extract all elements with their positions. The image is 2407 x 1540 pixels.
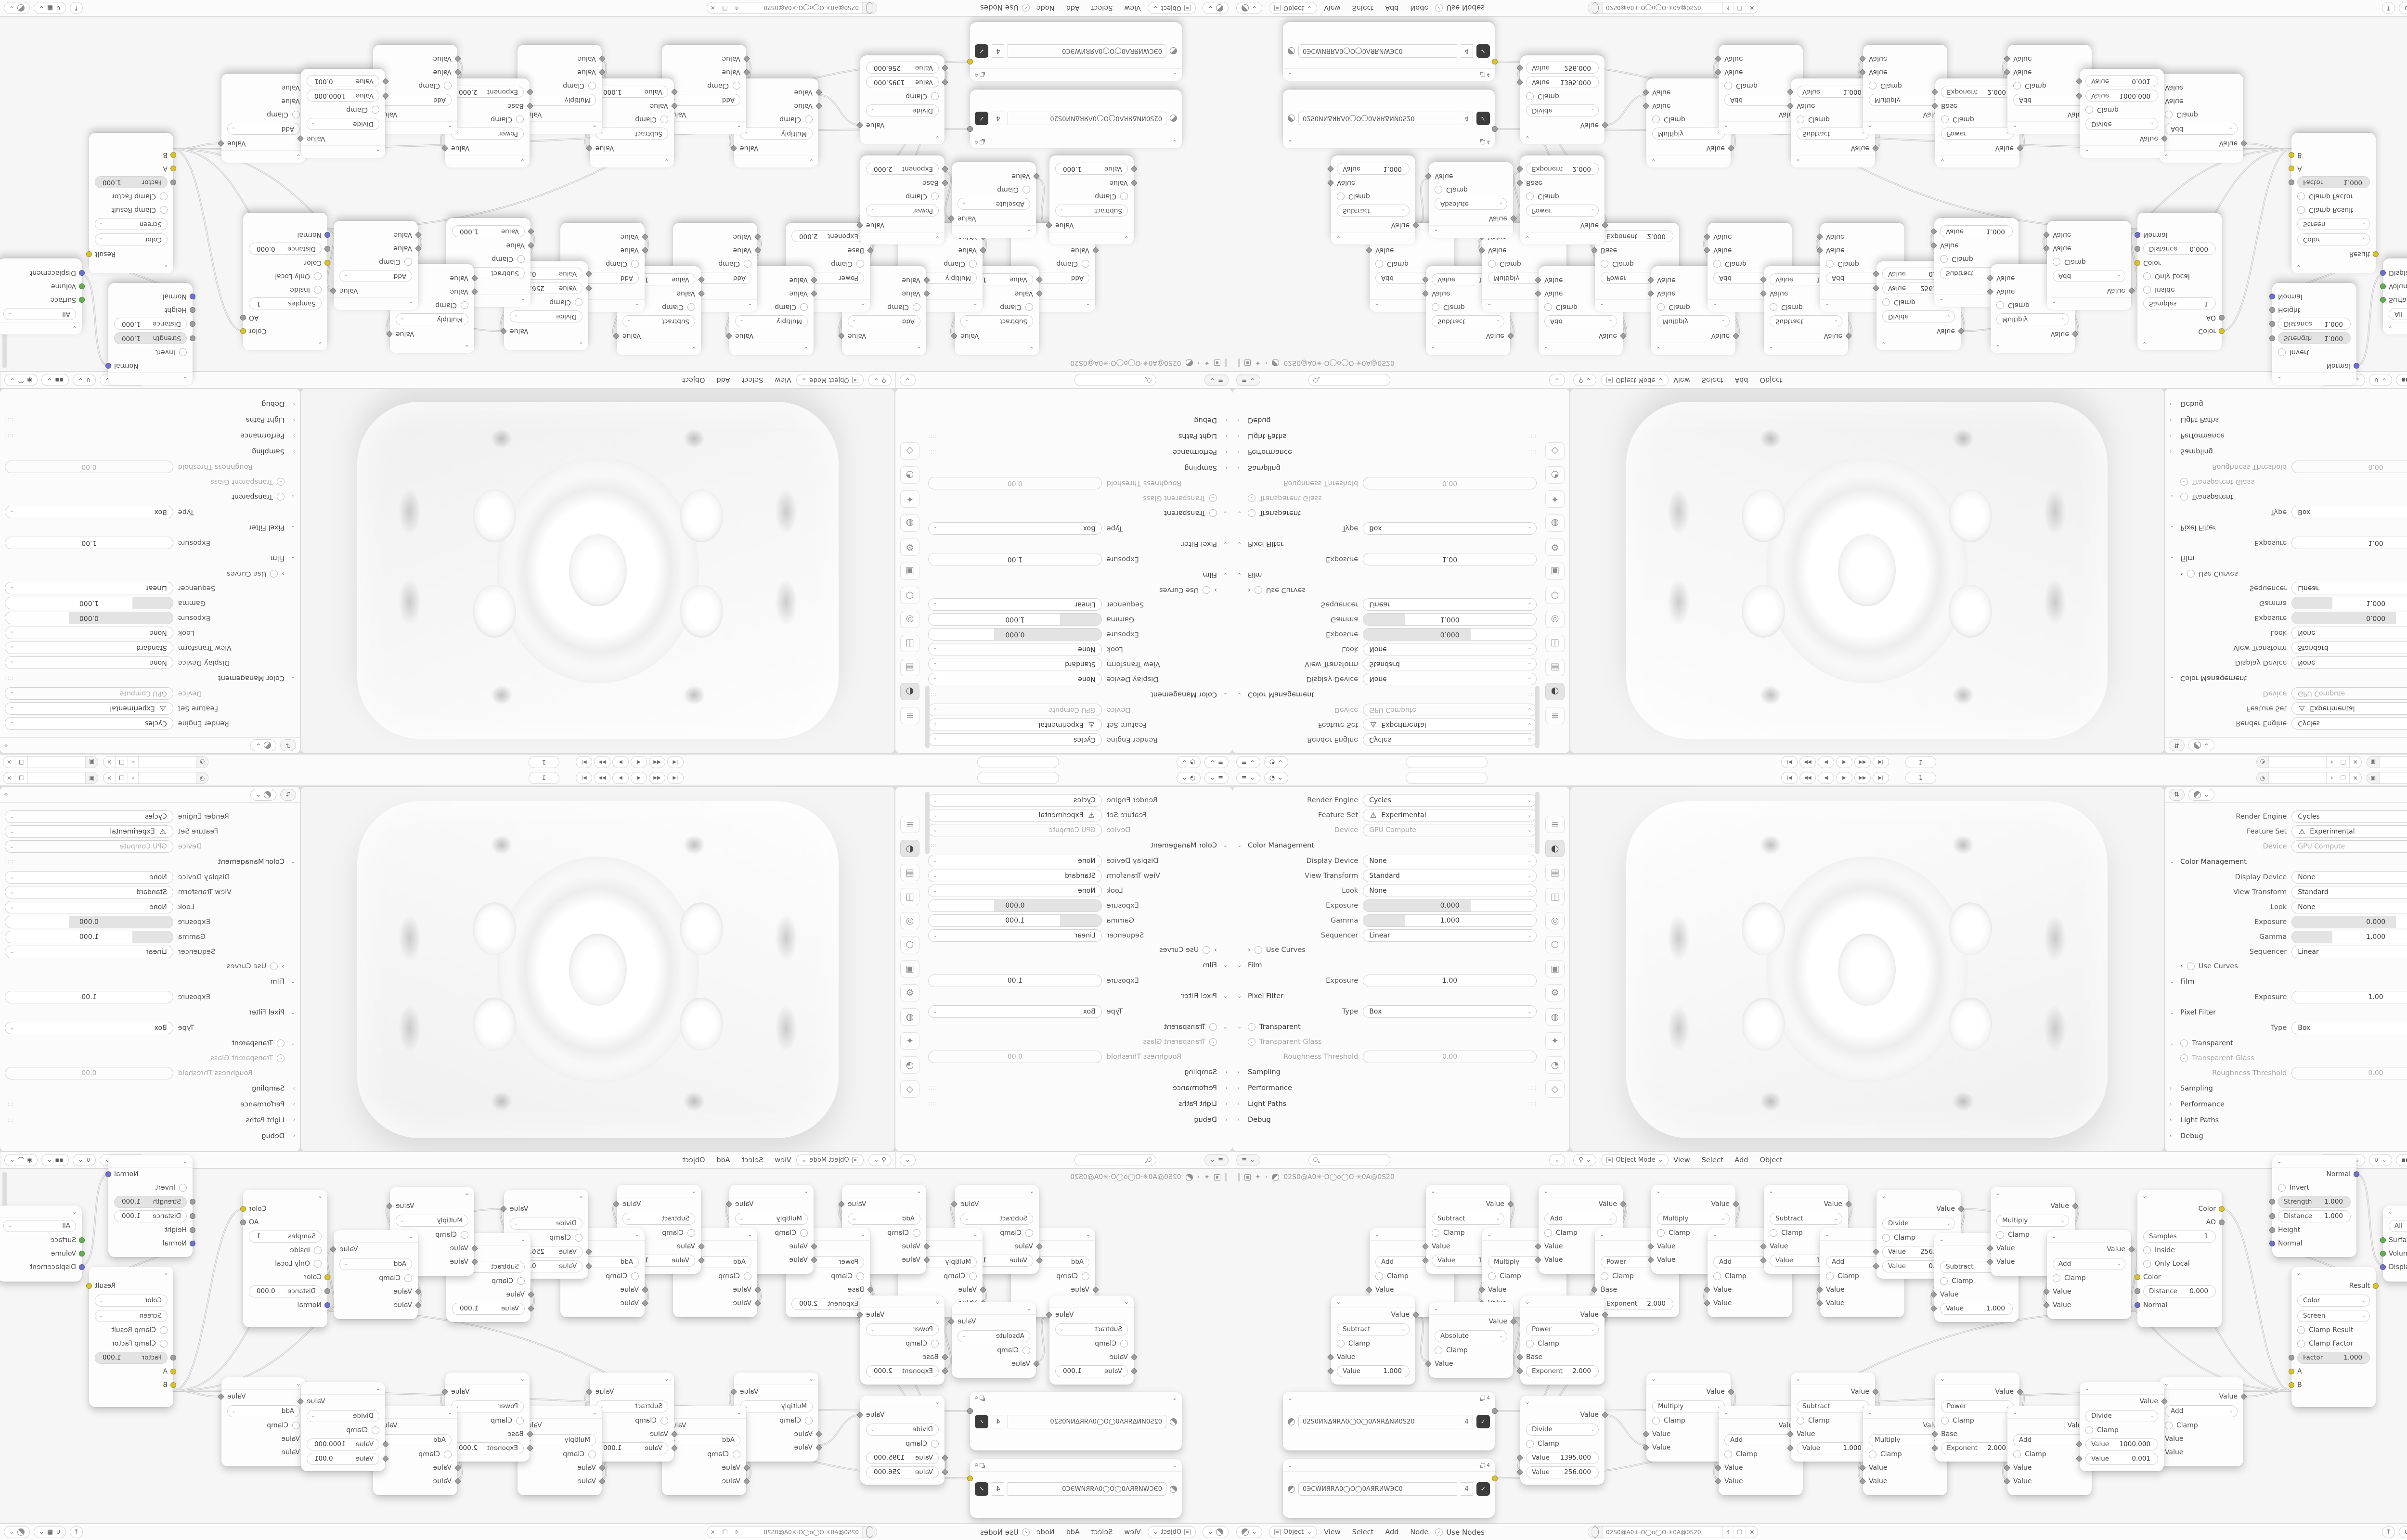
- node-socket[interactable]: [967, 1408, 973, 1414]
- node-checkbox[interactable]: Clamp: [1797, 1417, 1830, 1424]
- shader-node[interactable]: ⌄ValueAdd⌄ClampValueValue: [221, 1377, 306, 1466]
- panel-collapsed-header[interactable]: ›Debug: [1237, 412, 1537, 428]
- user-count[interactable]: 4: [731, 2, 742, 13]
- properties-tab[interactable]: ◫: [900, 888, 919, 905]
- material-name-field[interactable]: 02S0@A0✳·O◯o◯O·✳0A@0S20: [742, 2, 863, 13]
- node-checkbox[interactable]: Inside: [290, 1246, 322, 1254]
- editor-type-button[interactable]: ≡⌄: [1236, 772, 1260, 784]
- node-dropdown[interactable]: Divide⌄: [2085, 118, 2158, 130]
- sequencer-field[interactable]: Linear⌄: [5, 582, 173, 595]
- node-checkbox[interactable]: Clamp: [435, 1231, 468, 1239]
- panel-section-header[interactable]: ⌄Transparent: [5, 1035, 295, 1051]
- menu-item[interactable]: Add: [1066, 1528, 1080, 1536]
- panel-section-header[interactable]: ⌄Transparent: [1237, 1019, 1537, 1035]
- node-socket[interactable]: [324, 1302, 330, 1308]
- node-socket[interactable]: [2135, 1288, 2140, 1294]
- node-socket[interactable]: [190, 1199, 195, 1205]
- node-dropdown[interactable]: Power⌄: [866, 1323, 939, 1335]
- panel-collapsed-header[interactable]: ›Sampling: [1237, 1064, 1537, 1080]
- panel-section-header[interactable]: ⌄Film: [5, 974, 295, 989]
- playback-button[interactable]: ▶|: [1873, 756, 1889, 768]
- node-number-field[interactable]: Value1.000: [1055, 1365, 1128, 1377]
- properties-tab[interactable]: ✦: [1545, 1032, 1565, 1050]
- view-transform-field[interactable]: Standard⌄: [5, 642, 173, 654]
- node-dropdown[interactable]: Absolute⌄: [958, 198, 1030, 210]
- node-socket[interactable]: [2380, 1251, 2386, 1257]
- overlays-button[interactable]: ◉⌒⌄: [4, 374, 38, 386]
- node-dropdown[interactable]: Subtract⌄: [1055, 1323, 1128, 1335]
- node-socket[interactable]: [240, 1219, 246, 1225]
- node-number-field[interactable]: Value1.000: [452, 1303, 525, 1315]
- feature-set-field[interactable]: ⚠Experimental⌄: [5, 825, 173, 838]
- exposure-field[interactable]: 1.00: [1363, 975, 1537, 987]
- shader-node[interactable]: ⌄ValuePower⌄ClampBaseExponent2.000: [445, 1373, 530, 1462]
- close-icon[interactable]: ✕: [707, 1527, 719, 1538]
- node-checkbox[interactable]: Clamp Result: [112, 1326, 168, 1334]
- node-socket[interactable]: [1492, 59, 1498, 64]
- shader-node[interactable]: ⌄ValuePower⌄ClampBaseExponent2.000: [1935, 1373, 2019, 1462]
- node-dropdown[interactable]: Add⌄: [1544, 316, 1617, 328]
- menu-item[interactable]: View: [1673, 1156, 1690, 1164]
- exposure-field[interactable]: 0.000: [5, 916, 173, 928]
- panel-section-header[interactable]: ⌄Color Management∷∷: [5, 670, 295, 686]
- menu-item[interactable]: View: [1324, 1528, 1340, 1536]
- shader-node[interactable]: ⌄NormalInvertStrength1.000Distance1.000H…: [108, 283, 193, 385]
- playback-options-button[interactable]: ◔⌄: [1264, 756, 1288, 768]
- panel-collapsed-header[interactable]: ›Debug: [5, 1128, 295, 1144]
- exposure-field[interactable]: 0.000: [2291, 612, 2407, 625]
- filter-button[interactable]: ⇅: [2169, 740, 2185, 752]
- node-number-field[interactable]: Strength1.000: [114, 1196, 187, 1208]
- node-socket[interactable]: [2269, 307, 2275, 313]
- exposure-field[interactable]: 1.00: [5, 991, 173, 1003]
- node-dropdown[interactable]: Add⌄: [2053, 270, 2125, 282]
- node-dropdown[interactable]: Divide⌄: [510, 311, 582, 323]
- display-device-field[interactable]: None⌄: [2291, 657, 2407, 669]
- context-button[interactable]: ⌄: [2188, 789, 2214, 801]
- node-checkbox[interactable]: Clamp: [1882, 298, 1915, 306]
- node-socket[interactable]: [190, 321, 195, 327]
- magnet-button[interactable]: ▪▪⌄: [2396, 374, 2407, 386]
- shader-node[interactable]: ⌄ValuePower⌄ClampBaseExponent2.000: [860, 1296, 945, 1385]
- playback-options-button[interactable]: ◔⌄: [1177, 756, 1201, 768]
- checkbox-row[interactable]: ⌄Transparent Glass: [928, 1035, 1228, 1049]
- shader-node[interactable]: ⌄ValuePower⌄ClampBaseExponent2.000: [445, 78, 530, 167]
- viewlayer-datablock-selector[interactable]: ▣ ❐ ✕: [3, 772, 98, 784]
- shader-node[interactable]: ⌄ValuePower⌄ClampBaseExponent2.000: [1520, 1296, 1605, 1385]
- node-checkbox[interactable]: Clamp: [906, 192, 939, 200]
- node-socket[interactable]: [79, 297, 85, 303]
- node-dropdown[interactable]: Add⌄: [2165, 123, 2238, 135]
- panel-collapsed-header[interactable]: ›Performance∷∷: [5, 428, 295, 444]
- node-number-field[interactable]: Exponent2.000: [1601, 1298, 1673, 1310]
- view-transform-field[interactable]: Standard⌄: [2291, 886, 2407, 898]
- look-field[interactable]: None⌄: [5, 627, 173, 640]
- shader-node[interactable]: ⌄ValueSubtract⌄ClampValueValue1.000: [590, 1373, 674, 1462]
- node-checkbox[interactable]: Clamp: [1941, 115, 1974, 123]
- node-number-field[interactable]: Exponent2.000: [1941, 1442, 2014, 1454]
- properties-tab[interactable]: ◔: [1545, 1056, 1565, 1074]
- node-checkbox[interactable]: Clamp: [2165, 111, 2198, 118]
- render-engine-field[interactable]: Cycles⌄: [5, 810, 173, 823]
- node-dropdown[interactable]: Multiply⌄: [1996, 1215, 2069, 1227]
- close-icon[interactable]: ✕: [1746, 1527, 1758, 1538]
- device-field[interactable]: GPU Compute⌄: [1363, 824, 1537, 836]
- collapse-button[interactable]: ⌄: [1549, 374, 1565, 386]
- shader-node[interactable]: ⌄40ЭCWИЯRΛ0◯O◯0ΛЯRИWЭC04✓: [970, 22, 1182, 81]
- panel-collapsed-header[interactable]: ›Light Paths∷∷: [1237, 1096, 1537, 1112]
- properties-tab[interactable]: ◐: [1545, 840, 1565, 857]
- properties-tab[interactable]: ▣: [1545, 960, 1565, 977]
- panel-section-header[interactable]: ⌄Pixel Filter: [1237, 536, 1537, 552]
- gamma-field[interactable]: 1.000: [928, 914, 1102, 927]
- node-number-field[interactable]: Samples1: [2143, 1231, 2216, 1243]
- copy-icon[interactable]: ❐: [2337, 772, 2349, 783]
- playback-button[interactable]: ◀◀: [649, 772, 665, 784]
- playback-button[interactable]: ▶▶: [594, 756, 610, 768]
- checkbox-row[interactable]: ›Use Curves: [5, 566, 295, 581]
- node-checkbox[interactable]: Clamp: [606, 1272, 639, 1280]
- menu-item[interactable]: Add: [717, 376, 730, 384]
- roughness-threshold-field[interactable]: 0.00: [2291, 461, 2407, 474]
- node-checkbox[interactable]: Clamp: [1095, 1340, 1128, 1347]
- properties-tab[interactable]: ▣: [900, 960, 919, 977]
- roughness-threshold-field[interactable]: 0.00: [5, 461, 173, 474]
- node-socket[interactable]: [2135, 1302, 2140, 1308]
- node-checkbox[interactable]: Inside: [2143, 1246, 2175, 1254]
- node-number-field[interactable]: Factor1.000: [2297, 1352, 2370, 1364]
- node-socket[interactable]: [190, 1241, 195, 1246]
- filter-button[interactable]: ⇅: [280, 789, 296, 801]
- node-dropdown[interactable]: Screen⌄: [95, 218, 168, 231]
- copy-icon[interactable]: ❐: [1734, 1527, 1746, 1538]
- properties-tab[interactable]: ◫: [1545, 635, 1565, 652]
- menu-item[interactable]: Add: [717, 1156, 730, 1164]
- node-number-field[interactable]: Value1.000: [1797, 86, 1869, 98]
- panel-collapsed-header[interactable]: ›Sampling: [5, 444, 295, 460]
- roughness-threshold-field[interactable]: 0.00: [2291, 1067, 2407, 1079]
- properties-tab[interactable]: ◍: [900, 1008, 919, 1026]
- node-checkbox[interactable]: Clamp: [418, 1450, 452, 1458]
- display-device-field[interactable]: None⌄: [5, 657, 173, 669]
- exposure-field[interactable]: 1.00: [2291, 537, 2407, 550]
- node-checkbox[interactable]: Clamp: [662, 303, 695, 311]
- shader-node[interactable]: ⌄ValueDivide⌄ClampValue1395.000Value256.…: [1520, 1396, 1605, 1485]
- magnet-button[interactable]: ▪▪⌄: [2396, 1154, 2407, 1166]
- shader-node[interactable]: ⌄ValueDivide⌄ClampValue1395.000Value256.…: [860, 1396, 945, 1485]
- shader-node[interactable]: ⌄402S0ИNΔЯRΛ0◯O◯0ΛЯRΔNИ0S204✓: [1283, 1392, 1495, 1450]
- shader-node[interactable]: ⌄ValuePower⌄ClampBaseExponent2.000: [1520, 155, 1605, 244]
- grip-handle[interactable]: [1225, 1173, 1227, 1181]
- node-number-field[interactable]: Strength1.000: [2278, 1196, 2351, 1208]
- checkbox-row[interactable]: ›Use Curves: [928, 583, 1228, 597]
- pin-icon[interactable]: ⌖: [4, 741, 8, 750]
- view-transform-field[interactable]: Standard⌄: [928, 658, 1102, 671]
- panel-section-header[interactable]: ⌄Transparent: [2170, 1035, 2407, 1051]
- node-checkbox[interactable]: Clamp: [1375, 1272, 1409, 1280]
- menu-item[interactable]: View: [775, 1156, 791, 1164]
- type-field[interactable]: Box⌄: [928, 1005, 1102, 1018]
- exposure-field[interactable]: 1.00: [928, 553, 1102, 566]
- node-checkbox[interactable]: Clamp: [1941, 1417, 1974, 1424]
- playback-button[interactable]: ▶▶: [1854, 772, 1871, 784]
- user-count[interactable]: 4: [1722, 1527, 1734, 1538]
- node-number-field[interactable]: Exponent2.000: [1601, 231, 1673, 243]
- node-number-field[interactable]: Value1.000: [1055, 163, 1128, 175]
- properties-tab[interactable]: ⚙: [1545, 539, 1565, 556]
- node-checkbox[interactable]: Clamp: [1657, 1229, 1690, 1237]
- properties-tab[interactable]: ◇: [900, 1080, 919, 1098]
- node-number-field[interactable]: Exponent2.000: [1526, 1365, 1599, 1377]
- menu-item[interactable]: Select: [1352, 1528, 1374, 1536]
- node-dropdown[interactable]: Subtract⌄: [1337, 1323, 1410, 1335]
- panel-section-header[interactable]: ⌄Film: [2170, 551, 2407, 566]
- node-dropdown[interactable]: Subtract⌄: [1770, 1213, 1842, 1225]
- node-checkbox[interactable]: Clamp Factor: [2297, 192, 2353, 200]
- node-dropdown[interactable]: Power⌄: [1526, 205, 1599, 217]
- node-checkbox[interactable]: Clamp Result: [2297, 1326, 2353, 1334]
- node-number-field[interactable]: Exponent2.000: [1526, 163, 1599, 175]
- node-dropdown[interactable]: Multiply⌄: [523, 1434, 596, 1446]
- node-checkbox[interactable]: Clamp: [1601, 260, 1634, 268]
- playback-button[interactable]: ◀: [631, 756, 647, 768]
- render-engine-field[interactable]: Cycles⌄: [5, 718, 173, 730]
- node-number-field[interactable]: Value0.001: [2085, 1453, 2158, 1465]
- properties-search-input[interactable]: [1074, 1154, 1156, 1166]
- node-dropdown[interactable]: Subtract⌄: [960, 1213, 1033, 1225]
- node-number-field[interactable]: Value0.001: [307, 1453, 379, 1465]
- node-checkbox[interactable]: Clamp: [1940, 1277, 1973, 1285]
- viewport-menus[interactable]: ViewSelectAddObject: [682, 1156, 791, 1164]
- panel-collapsed-header[interactable]: ›Light Paths∷∷: [928, 428, 1228, 444]
- menu-item[interactable]: Add: [1734, 376, 1748, 384]
- node-socket[interactable]: [1492, 126, 1498, 132]
- magnet-button[interactable]: ▪▪⌄: [41, 374, 69, 386]
- node-number-field[interactable]: Exponent2.000: [866, 1365, 939, 1377]
- shader-node[interactable]: ⌄ValuePower⌄ClampBaseExponent2.000: [860, 155, 945, 244]
- playback-button[interactable]: ▶|: [576, 772, 592, 784]
- panel-section-header[interactable]: ⌄Film: [928, 957, 1228, 973]
- mode-dropdown[interactable]: Object Mode⌄: [1601, 1154, 1669, 1166]
- node-checkbox[interactable]: Clamp: [418, 82, 452, 90]
- node-number-field[interactable]: Distance1.000: [2278, 1210, 2351, 1222]
- viewlayer-name-field[interactable]: [28, 757, 86, 768]
- material-datablock-selector[interactable]: 02S0@A0✳·O◯o◯O·✳0A@0S20 4 ❐ ✕: [707, 2, 877, 14]
- close-icon[interactable]: ✕: [104, 772, 116, 783]
- node-checkbox[interactable]: Clamp: [1337, 1340, 1370, 1347]
- node-checkbox[interactable]: Clamp: [906, 1340, 939, 1347]
- node-dropdown[interactable]: Add⌄: [668, 94, 740, 106]
- node-dropdown[interactable]: Multiply⌄: [735, 316, 808, 328]
- properties-tab[interactable]: ✦: [900, 490, 919, 508]
- node-checkbox[interactable]: Clamp: [944, 260, 977, 268]
- panel-collapsed-header[interactable]: ›Light Paths∷∷: [5, 1112, 295, 1128]
- node-dropdown[interactable]: Color⌄: [2297, 1295, 2370, 1307]
- node-socket[interactable]: [2380, 283, 2386, 289]
- node-dropdown[interactable]: Divide⌄: [1526, 1424, 1599, 1436]
- panel-collapsed-header[interactable]: ›Debug: [1237, 1112, 1537, 1128]
- properties-tab[interactable]: ◇: [1545, 1080, 1565, 1098]
- properties-search-input[interactable]: [1074, 374, 1156, 386]
- node-number-field[interactable]: Value0.001: [2085, 76, 2158, 88]
- copy-icon[interactable]: ❐: [1734, 2, 1746, 13]
- exposure-field[interactable]: 1.00: [928, 975, 1102, 987]
- copy-icon[interactable]: ❐: [116, 757, 128, 768]
- node-checkbox[interactable]: Clamp: [1375, 260, 1409, 268]
- roughness-threshold-field[interactable]: 0.00: [5, 1067, 173, 1079]
- node-socket[interactable]: [2380, 1264, 2386, 1270]
- current-frame-field[interactable]: 1: [529, 772, 559, 784]
- filter-type-button[interactable]: ≡⌄: [1204, 1154, 1229, 1166]
- node-checkbox[interactable]: Clamp: [1526, 92, 1559, 100]
- node-checkbox[interactable]: Clamp: [1488, 260, 1521, 268]
- shader-node[interactable]: ⌄All⌄SurfaceVolumeDisplacement: [0, 1206, 82, 1282]
- shader-node[interactable]: ⌄ResultColor⌄Screen⌄Clamp ResultClamp Fa…: [2291, 1267, 2376, 1407]
- viewport-3d[interactable]: [1570, 389, 2164, 753]
- node-number-field[interactable]: Value1.000: [595, 86, 668, 98]
- properties-tab[interactable]: ≡: [1545, 816, 1565, 833]
- node-dropdown[interactable]: Multiply⌄: [1869, 94, 1941, 106]
- panel-collapsed-header[interactable]: ›Light Paths∷∷: [5, 412, 295, 428]
- node-socket[interactable]: [105, 1171, 111, 1177]
- node-menus[interactable]: ViewSelectAddNode: [1036, 4, 1141, 12]
- current-frame-field[interactable]: 1: [1905, 756, 1936, 768]
- node-checkbox[interactable]: Clamp: [831, 260, 864, 268]
- node-socket[interactable]: [967, 59, 973, 64]
- panel-section-header[interactable]: ⌄Pixel Filter: [928, 536, 1228, 552]
- viewlayer-name-field[interactable]: [28, 772, 86, 783]
- snap-button[interactable]: ∪⌄: [73, 1154, 96, 1166]
- node-checkbox[interactable]: Clamp: [1435, 186, 1468, 193]
- filter-type-button[interactable]: ≡⌄: [1236, 1154, 1260, 1166]
- node-socket[interactable]: [190, 1227, 195, 1233]
- node-number-field[interactable]: Distance0.000: [2143, 1285, 2216, 1297]
- node-socket[interactable]: [170, 1369, 176, 1374]
- pin-icon[interactable]: ⌖: [4, 790, 8, 799]
- node-checkbox[interactable]: Clamp: [1526, 192, 1559, 200]
- scene-name-field[interactable]: [2268, 757, 2326, 768]
- properties-search-input[interactable]: [1308, 1154, 1390, 1166]
- properties-tab[interactable]: ◐: [900, 840, 919, 857]
- material-datablock-selector[interactable]: 02S0@A0✳·O◯o◯O·✳0A@0S20 4 ❐ ✕: [1588, 2, 1758, 14]
- node-socket[interactable]: [2269, 1241, 2275, 1246]
- node-number-field[interactable]: Value1000.000: [307, 1438, 379, 1450]
- node-socket[interactable]: [240, 1206, 246, 1212]
- properties-tab[interactable]: ◐: [1545, 683, 1565, 700]
- viewlayer-name-field[interactable]: [2379, 757, 2407, 768]
- viewport-menus[interactable]: ViewSelectAddObject: [1673, 376, 1782, 384]
- node-checkbox[interactable]: Clamp: [2085, 1426, 2119, 1434]
- panel-section-header[interactable]: ⌄Color Management∷∷: [1237, 837, 1537, 853]
- properties-tab[interactable]: ◍: [900, 514, 919, 532]
- viewport-3d[interactable]: [301, 787, 894, 1151]
- copy-icon[interactable]: ❐: [15, 757, 28, 768]
- playback-options-button[interactable]: ◔⌄: [1264, 772, 1288, 784]
- panel-section-header[interactable]: ⌄Transparent: [928, 1019, 1228, 1035]
- magnet-grid-button[interactable]: ∪▦⌄: [34, 1526, 66, 1538]
- properties-search-input[interactable]: [1308, 374, 1390, 386]
- menu-item[interactable]: View: [1124, 1528, 1140, 1536]
- node-dropdown[interactable]: Multiply⌄: [740, 128, 813, 140]
- node-dropdown[interactable]: Screen⌄: [95, 1310, 168, 1322]
- node-checkbox[interactable]: Clamp: [1652, 1417, 1685, 1424]
- node-socket[interactable]: [2289, 1369, 2294, 1374]
- render-engine-field[interactable]: Cycles⌄: [1363, 794, 1537, 807]
- node-dropdown[interactable]: Divide⌄: [2085, 1410, 2158, 1422]
- shader-node[interactable]: ⌄ValueSubtract⌄ClampValueValue1.000: [1331, 155, 1415, 244]
- node-checkbox[interactable]: Clamp: [662, 1229, 695, 1237]
- properties-tab[interactable]: ◎: [1545, 912, 1565, 929]
- playback-button[interactable]: ▶: [1836, 756, 1852, 768]
- roughness-threshold-field[interactable]: 0.00: [1363, 477, 1537, 490]
- panel-section-header[interactable]: ⌄Pixel Filter: [2170, 1004, 2407, 1020]
- node-socket[interactable]: [2269, 1227, 2275, 1233]
- node-socket[interactable]: [240, 315, 246, 321]
- node-dropdown[interactable]: Add⌄: [379, 1434, 452, 1446]
- display-device-field[interactable]: None⌄: [928, 855, 1102, 867]
- device-field[interactable]: GPU Compute⌄: [2291, 688, 2407, 700]
- menu-item[interactable]: Select: [1352, 4, 1374, 12]
- node-checkbox[interactable]: Clamp Factor: [2297, 1340, 2353, 1347]
- panel-collapsed-header[interactable]: ›Performance∷∷: [1237, 1080, 1537, 1096]
- node-number-field[interactable]: Value1000.000: [307, 90, 379, 102]
- node-socket[interactable]: [2373, 251, 2379, 257]
- shader-node[interactable]: ⌄ValueAbsolute⌄ClampValue: [952, 1302, 1036, 1378]
- node-checkbox[interactable]: Clamp: [1826, 260, 1859, 268]
- menu-item[interactable]: Add: [1066, 4, 1080, 12]
- node-socket[interactable]: [190, 307, 195, 313]
- material-datablock-selector[interactable]: 02S0@A0✳·O◯o◯O·✳0A@0S20 4 ❐ ✕: [1588, 1526, 1758, 1538]
- shader-type-dropdown[interactable]: Object⌄: [1148, 2, 1196, 14]
- snap-button[interactable]: ∪⌄: [2369, 374, 2392, 386]
- node-dropdown[interactable]: Subtract⌄: [1055, 205, 1128, 217]
- node-menus[interactable]: ViewSelectAddNode: [1324, 4, 1428, 12]
- properties-tab[interactable]: ⬡: [1545, 936, 1565, 953]
- type-field[interactable]: Box⌄: [5, 1022, 173, 1034]
- checkbox-row[interactable]: ›Use Curves: [1237, 943, 1537, 957]
- node-socket[interactable]: [1492, 1476, 1498, 1481]
- checkbox-row[interactable]: ›Use Curves: [2170, 959, 2407, 974]
- viewport-menus[interactable]: ViewSelectAddObject: [682, 376, 791, 384]
- context-button[interactable]: ⌄: [2188, 740, 2214, 752]
- look-field[interactable]: None⌄: [1363, 885, 1537, 897]
- node-number-field[interactable]: Strength1.000: [2278, 333, 2351, 345]
- panel-collapsed-header[interactable]: ›Debug: [2170, 1128, 2407, 1144]
- node-dropdown[interactable]: Absolute⌄: [1435, 1330, 1507, 1342]
- node-number-field[interactable]: Factor1.000: [2297, 177, 2370, 189]
- node-socket[interactable]: [170, 180, 176, 185]
- menu-item[interactable]: Select: [1702, 376, 1723, 384]
- shader-node[interactable]: ⌄ValueAdd⌄ClampValueValue: [2047, 1230, 2131, 1319]
- node-checkbox[interactable]: Clamp: [2053, 1274, 2086, 1282]
- node-number-field[interactable]: Value256.000: [866, 62, 939, 74]
- properties-tab[interactable]: ◔: [900, 1056, 919, 1074]
- look-field[interactable]: None⌄: [928, 885, 1102, 897]
- node-number-field[interactable]: Distance1.000: [2278, 318, 2351, 330]
- menu-item[interactable]: Select: [1091, 1528, 1113, 1536]
- menu-item[interactable]: View: [1124, 4, 1140, 12]
- node-socket[interactable]: [190, 335, 195, 341]
- shader-node[interactable]: ⌄ColorAOSamples1InsideOnly LocalColorDis…: [243, 213, 327, 350]
- checkbox-row[interactable]: ›Use Curves: [1237, 583, 1537, 597]
- playback-button[interactable]: ◀◀: [1799, 772, 1816, 784]
- pin-icon[interactable]: ⌖: [128, 757, 139, 768]
- node-socket[interactable]: [2219, 1219, 2225, 1225]
- roughness-threshold-field[interactable]: 0.00: [928, 1051, 1102, 1063]
- properties-tab[interactable]: ◇: [1545, 442, 1565, 460]
- playback-button[interactable]: ▶|: [1873, 772, 1889, 784]
- exposure-field[interactable]: 0.000: [1363, 899, 1537, 912]
